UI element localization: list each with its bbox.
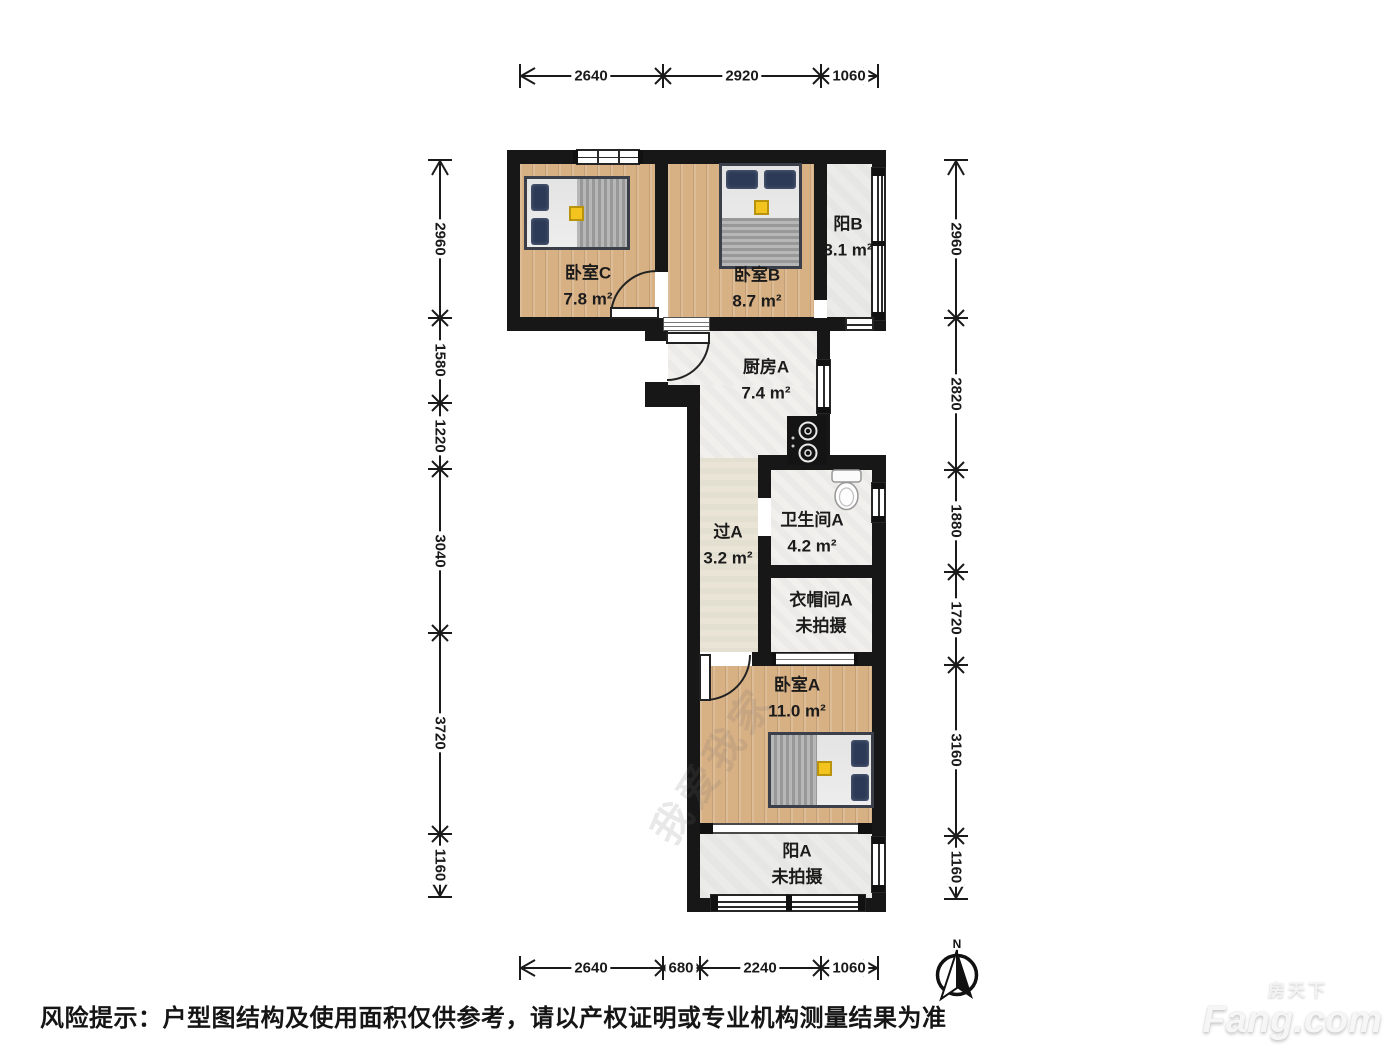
dim-right-5: 3160 — [948, 730, 965, 769]
wall — [758, 455, 771, 665]
disclaimer-text: 风险提示：户型图结构及使用面积仅供参考，请以产权证明或专业机构测量结果为准 — [40, 998, 947, 1033]
window-balconyB-bottom — [845, 317, 874, 331]
dimension-line-left — [428, 160, 452, 897]
room-label-cloakroomA: 衣帽间A 未拍摄 — [789, 588, 852, 641]
room-area: 3.1 m² — [823, 238, 872, 264]
room-name: 卧室C — [563, 261, 612, 287]
opening-cloakroomA-bottom — [772, 653, 858, 665]
window-bathroomA-right — [871, 482, 886, 523]
door-opening-bathroomA — [758, 498, 771, 536]
room-label-balconyA: 阳A 未拍摄 — [772, 839, 823, 892]
floorplan-canvas: 2640 2920 1060 2640 680 2240 1060 2960 1… — [0, 0, 1400, 1050]
door-opening-bedroomC — [655, 272, 668, 318]
room-area: 4.2 m² — [780, 534, 843, 560]
dim-left-1: 2960 — [432, 219, 449, 258]
room-area: 7.8 m² — [563, 287, 612, 313]
dim-top-2: 2920 — [722, 68, 761, 85]
room-name: 卧室A — [768, 673, 826, 699]
dim-top-1: 2640 — [571, 68, 610, 85]
dim-left-4: 3040 — [432, 531, 449, 570]
room-label-kitchenA: 厨房A 7.4 m² — [741, 355, 790, 408]
room-area: 3.2 m² — [703, 546, 752, 572]
dim-bottom-1: 2640 — [571, 960, 610, 977]
dim-bottom-2: 680 — [665, 960, 696, 977]
room-name: 卧室B — [732, 263, 781, 289]
door-opening-balconyB — [814, 300, 827, 318]
room-area: 7.4 m² — [741, 381, 790, 407]
wall — [655, 150, 668, 272]
compass-north-label: N — [953, 937, 962, 951]
dim-right-2: 2820 — [948, 374, 965, 413]
bed-bedroomA — [768, 732, 874, 808]
room-label-bathroomA: 卫生间A 4.2 m² — [780, 508, 843, 561]
fang-logo: 房天下 Fang.com — [1203, 982, 1382, 1039]
fang-logo-cn: 房天下 — [1203, 982, 1328, 999]
dim-bottom-3: 2240 — [740, 960, 779, 977]
door-opening-bedroomA — [700, 652, 752, 666]
window-balconyA-bottom — [710, 894, 866, 912]
sill-bedroomA-balconyA — [700, 823, 872, 834]
room-name: 衣帽间A — [789, 588, 852, 614]
fang-logo-en: Fang.com — [1203, 1001, 1382, 1039]
dim-left-6: 1160 — [432, 846, 449, 885]
compass-icon — [938, 950, 977, 999]
wall — [758, 565, 886, 578]
window-balconyB-right — [871, 167, 886, 321]
dim-right-6: 1160 — [948, 848, 965, 887]
threshold-bedroomB-kitchen — [663, 317, 710, 331]
wall — [507, 150, 520, 331]
room-label-bedroomC: 卧室C 7.8 m² — [563, 261, 612, 314]
room-area: 未拍摄 — [772, 865, 823, 891]
bed-bedroomC — [524, 176, 630, 250]
room-label-hallwayA: 过A 3.2 m² — [703, 520, 752, 573]
room-area: 8.7 m² — [732, 289, 781, 315]
dim-right-4: 1720 — [948, 598, 965, 637]
dim-left-3: 1220 — [432, 416, 449, 455]
wall — [758, 455, 886, 470]
dim-bottom-4: 1060 — [829, 960, 868, 977]
room-name: 卫生间A — [780, 508, 843, 534]
bed-bedroomB — [719, 163, 802, 269]
room-label-bedroomB: 卧室B 8.7 m² — [732, 263, 781, 316]
window-bedroomC-top — [576, 149, 640, 165]
dim-left-2: 1580 — [432, 340, 449, 379]
room-area: 未拍摄 — [789, 614, 852, 640]
dim-right-3: 1880 — [948, 501, 965, 540]
room-name: 过A — [703, 520, 752, 546]
dim-left-5: 3720 — [432, 713, 449, 752]
dim-right-1: 2960 — [948, 219, 965, 258]
dim-top-3: 1060 — [829, 68, 868, 85]
room-label-balconyB: 阳B 3.1 m² — [823, 212, 872, 265]
room-name: 阳B — [823, 212, 872, 238]
room-name: 厨房A — [741, 355, 790, 381]
room-name: 阳A — [772, 839, 823, 865]
window-balconyA-right — [871, 836, 886, 893]
window-kitchenA-right — [816, 359, 831, 414]
wall — [507, 150, 886, 164]
door-opening-entry-kitchen — [645, 341, 668, 382]
